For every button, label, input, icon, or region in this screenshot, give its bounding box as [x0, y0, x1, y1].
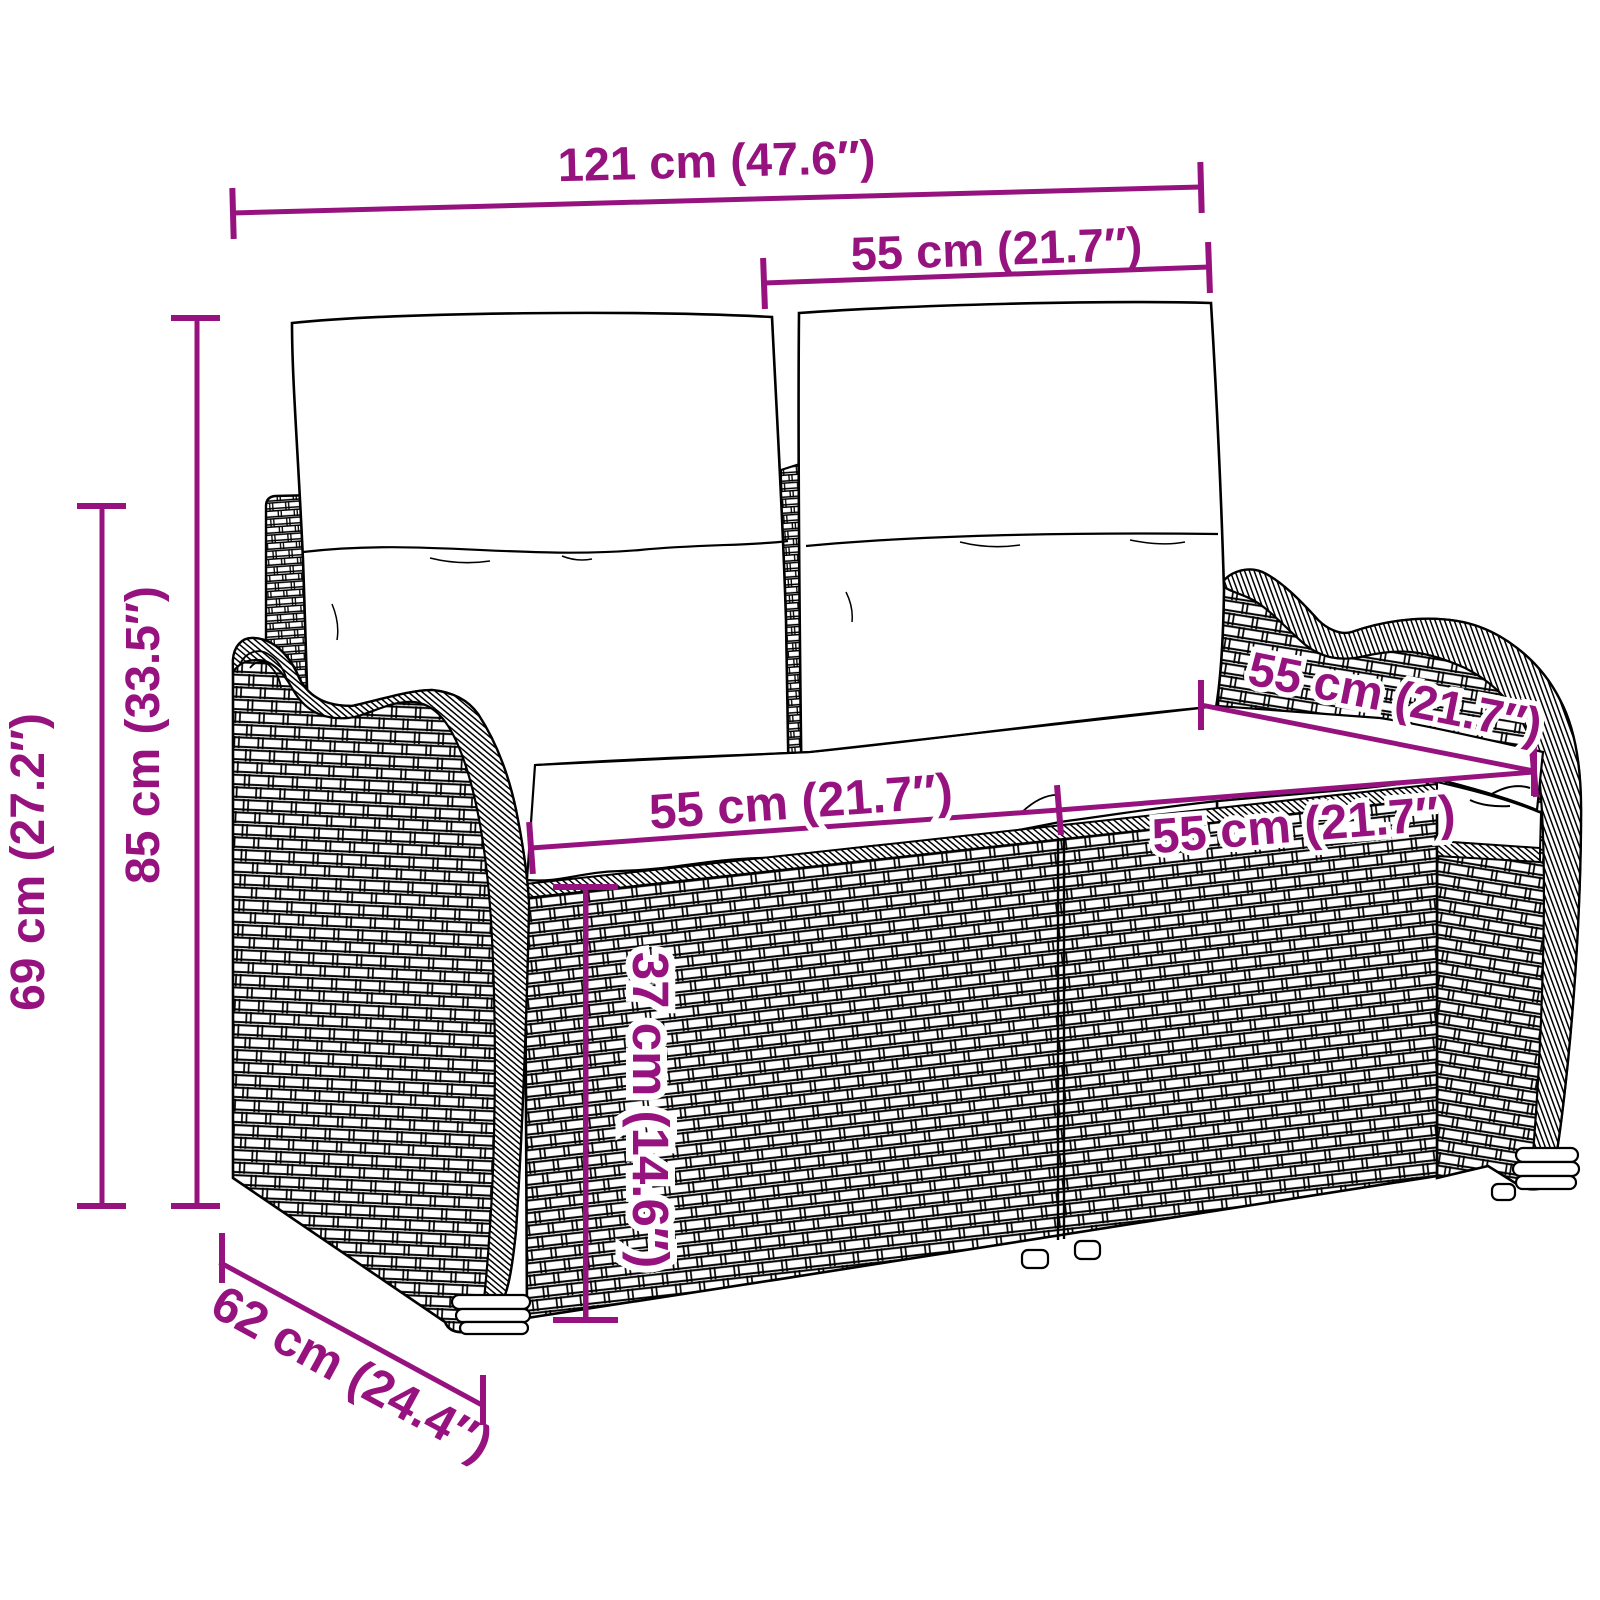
- svg-text:121 cm (47.6″): 121 cm (47.6″): [557, 130, 876, 192]
- svg-text:55 cm (21.7″): 55 cm (21.7″): [850, 217, 1143, 280]
- svg-text:37 cm (14.6″): 37 cm (14.6″): [622, 952, 679, 1268]
- svg-text:85 cm (33.5″): 85 cm (33.5″): [117, 586, 170, 884]
- svg-text:69 cm (27.2″): 69 cm (27.2″): [2, 713, 55, 1011]
